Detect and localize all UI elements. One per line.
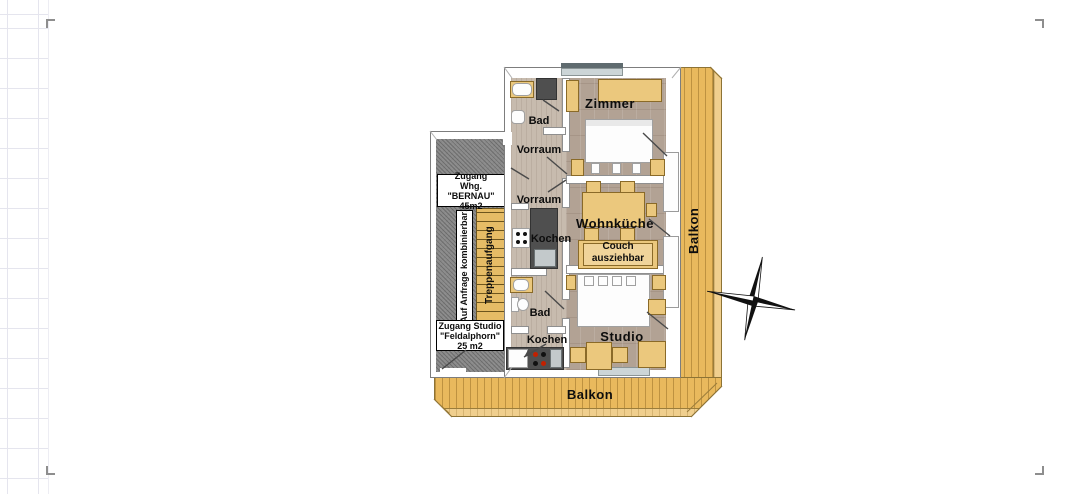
label-bad-bottom: Bad [524, 307, 556, 320]
note-feldalphorn-box: Zugang Studio "Feldalphorn" 25 m2 [436, 320, 504, 351]
note-bernau-line1: Zugang [438, 171, 504, 181]
crop-mark-bottom-left-icon [46, 466, 55, 475]
pillow [626, 276, 636, 286]
nightstand [571, 159, 584, 176]
burner-icon [516, 232, 520, 236]
balcony-door-lower [663, 236, 679, 308]
label-couch-line1: Couch [580, 241, 656, 253]
label-kochen-bottom: Kochen [524, 334, 570, 347]
label-kochen-top: Kochen [527, 233, 575, 246]
door-opening-bottom [506, 369, 538, 377]
label-bad-top: Bad [524, 115, 554, 128]
burner-icon [541, 361, 546, 366]
pillow [612, 276, 622, 286]
studio-chair [612, 347, 628, 363]
wall [543, 127, 566, 135]
note-feldalphorn-line1: Zugang Studio [437, 321, 503, 331]
burner-icon [533, 361, 538, 366]
headboard-shelf [652, 275, 666, 290]
bed-leg [632, 163, 641, 174]
sink-icon [513, 279, 529, 291]
wall [547, 326, 566, 334]
label-vorraum-mid: Vorraum [512, 194, 566, 207]
label-couch: Couch ausziehbar [580, 241, 656, 264]
bathtub-icon [512, 83, 532, 96]
window-top [561, 68, 623, 76]
nightstand [650, 159, 665, 176]
studio-table [586, 342, 612, 370]
label-wohnkueche: Wohnküche [565, 217, 665, 232]
label-studio: Studio [588, 330, 656, 345]
door-opening-annex [503, 132, 512, 145]
note-bernau-line3: 45m2 [438, 201, 504, 211]
wall [511, 268, 547, 276]
studio-desk [638, 341, 666, 368]
wall [511, 326, 529, 334]
fridge-icon [508, 349, 528, 368]
note-feldalphorn-line2: "Feldalphorn" [437, 331, 503, 341]
note-bernau-line2: Whg. "BERNAU" [438, 181, 504, 201]
studio-chair [570, 347, 586, 363]
crop-mark-top-left-icon [46, 19, 55, 28]
burner-icon [516, 240, 520, 244]
crop-mark-top-right-icon [1035, 19, 1044, 28]
kitchen-sink-icon [534, 249, 556, 267]
bed-leg [591, 163, 600, 174]
burner-icon [533, 352, 538, 357]
crop-mark-bottom-right-icon [1035, 466, 1044, 475]
grid-paper [0, 0, 49, 494]
headboard-shelf [566, 275, 576, 290]
pillow [584, 276, 594, 286]
balcony-right-edge [713, 68, 721, 416]
label-zimmer: Zimmer [572, 97, 648, 112]
burner-icon [541, 352, 546, 357]
note-kombinierbar-box: Auf Anfrage kombinierbar! [456, 210, 473, 322]
studio-shelf [648, 299, 666, 315]
label-couch-line2: ausziehbar [580, 253, 656, 265]
bed-zimmer-headboard [586, 120, 652, 126]
label-balkon-bottom: Balkon [560, 388, 620, 403]
note-feldalphorn-line3: 25 m2 [437, 341, 503, 351]
label-balkon-right: Balkon [687, 200, 702, 262]
floor-plan-page: Auf Anfrage kombinierbar! Treppenaufgang… [0, 0, 1070, 494]
annex-door-opening [440, 368, 466, 377]
note-bernau-box: Zugang Whg. "BERNAU" 45m2 [437, 174, 505, 207]
label-vorraum-top: Vorraum [512, 144, 566, 157]
bed-leg [612, 163, 621, 174]
sink-icon [511, 110, 525, 124]
label-treppenaufgang: Treppenaufgang [484, 228, 496, 304]
kitchen-sink-icon [550, 349, 562, 368]
wall [566, 175, 668, 184]
balcony-door-upper [663, 152, 679, 212]
balcony-bottom-edge [435, 408, 721, 416]
bathroom-cabinet [536, 78, 557, 100]
dining-chair [646, 203, 657, 217]
note-kombinierbar-label: Auf Anfrage kombinierbar! [459, 209, 469, 323]
pillow [598, 276, 608, 286]
